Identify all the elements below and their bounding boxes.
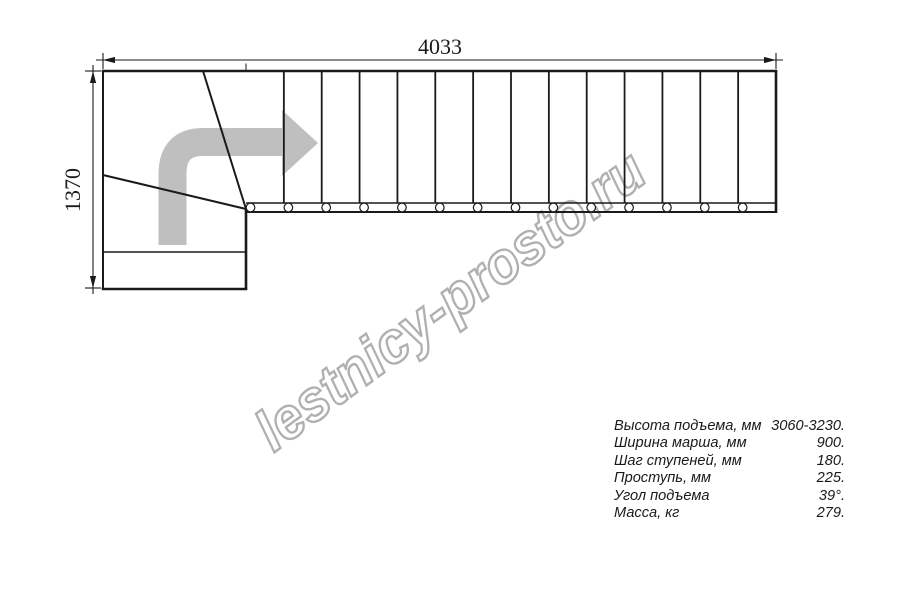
spec-table: Высота подъема, мм 3060-3230. Ширина мар… <box>614 418 845 522</box>
dimension-width-arrow-bottom <box>90 276 96 288</box>
spec-value: 39°. <box>819 488 845 505</box>
baluster-circle <box>360 203 369 212</box>
stair-drawing-page: lestnicy-prosto.ru 4033 <box>0 0 900 600</box>
spec-label: Шаг ступеней, мм <box>614 453 742 470</box>
dimension-length-arrow-right <box>764 57 776 63</box>
direction-arrow-body <box>173 142 284 245</box>
direction-arrow-head <box>282 110 318 176</box>
spec-label: Проступь, мм <box>614 470 711 487</box>
baluster-circle <box>246 203 255 212</box>
dimension-length-label: 4033 <box>418 34 462 59</box>
spec-value: 180. <box>817 453 845 470</box>
spec-row: Угол подъема 39°. <box>614 488 845 505</box>
spec-row: Проступь, мм 225. <box>614 470 845 487</box>
baluster-circle <box>625 203 634 212</box>
baluster-circle <box>322 203 331 212</box>
baluster-circle <box>511 203 520 212</box>
baluster-circle <box>284 203 293 212</box>
stair-outline <box>102 64 778 290</box>
watermark-text: lestnicy-prosto.ru <box>243 137 657 463</box>
spec-row: Ширина марша, мм 900. <box>614 435 845 452</box>
baluster-circle <box>738 203 747 212</box>
spec-label: Угол подъема <box>614 488 709 505</box>
spec-value: 900. <box>817 435 845 452</box>
spec-value: 225. <box>817 470 845 487</box>
baluster-circle <box>700 203 709 212</box>
spec-label: Ширина марша, мм <box>614 435 747 452</box>
spec-row: Высота подъема, мм 3060-3230. <box>614 418 845 435</box>
spec-row: Шаг ступеней, мм 180. <box>614 453 845 470</box>
dimension-width-label: 1370 <box>60 168 85 212</box>
spec-label: Масса, кг <box>614 505 679 522</box>
dimension-width-arrow-top <box>90 71 96 83</box>
baluster-circle <box>663 203 672 212</box>
spec-row: Масса, кг 279. <box>614 505 845 522</box>
baluster-circle <box>473 203 482 212</box>
baluster-circle <box>549 203 558 212</box>
spec-value: 3060-3230. <box>771 418 845 435</box>
dimension-length-arrow-left <box>103 57 115 63</box>
dimension-width: 1370 <box>60 65 101 294</box>
spec-label: Высота подъема, мм <box>614 418 762 435</box>
baluster-circle <box>435 203 444 212</box>
dimension-length: 4033 <box>96 34 783 69</box>
baluster-circle <box>587 203 596 212</box>
baluster-circles <box>246 203 747 212</box>
step-lines <box>284 71 738 203</box>
baluster-circle <box>398 203 407 212</box>
spec-value: 279. <box>817 505 845 522</box>
